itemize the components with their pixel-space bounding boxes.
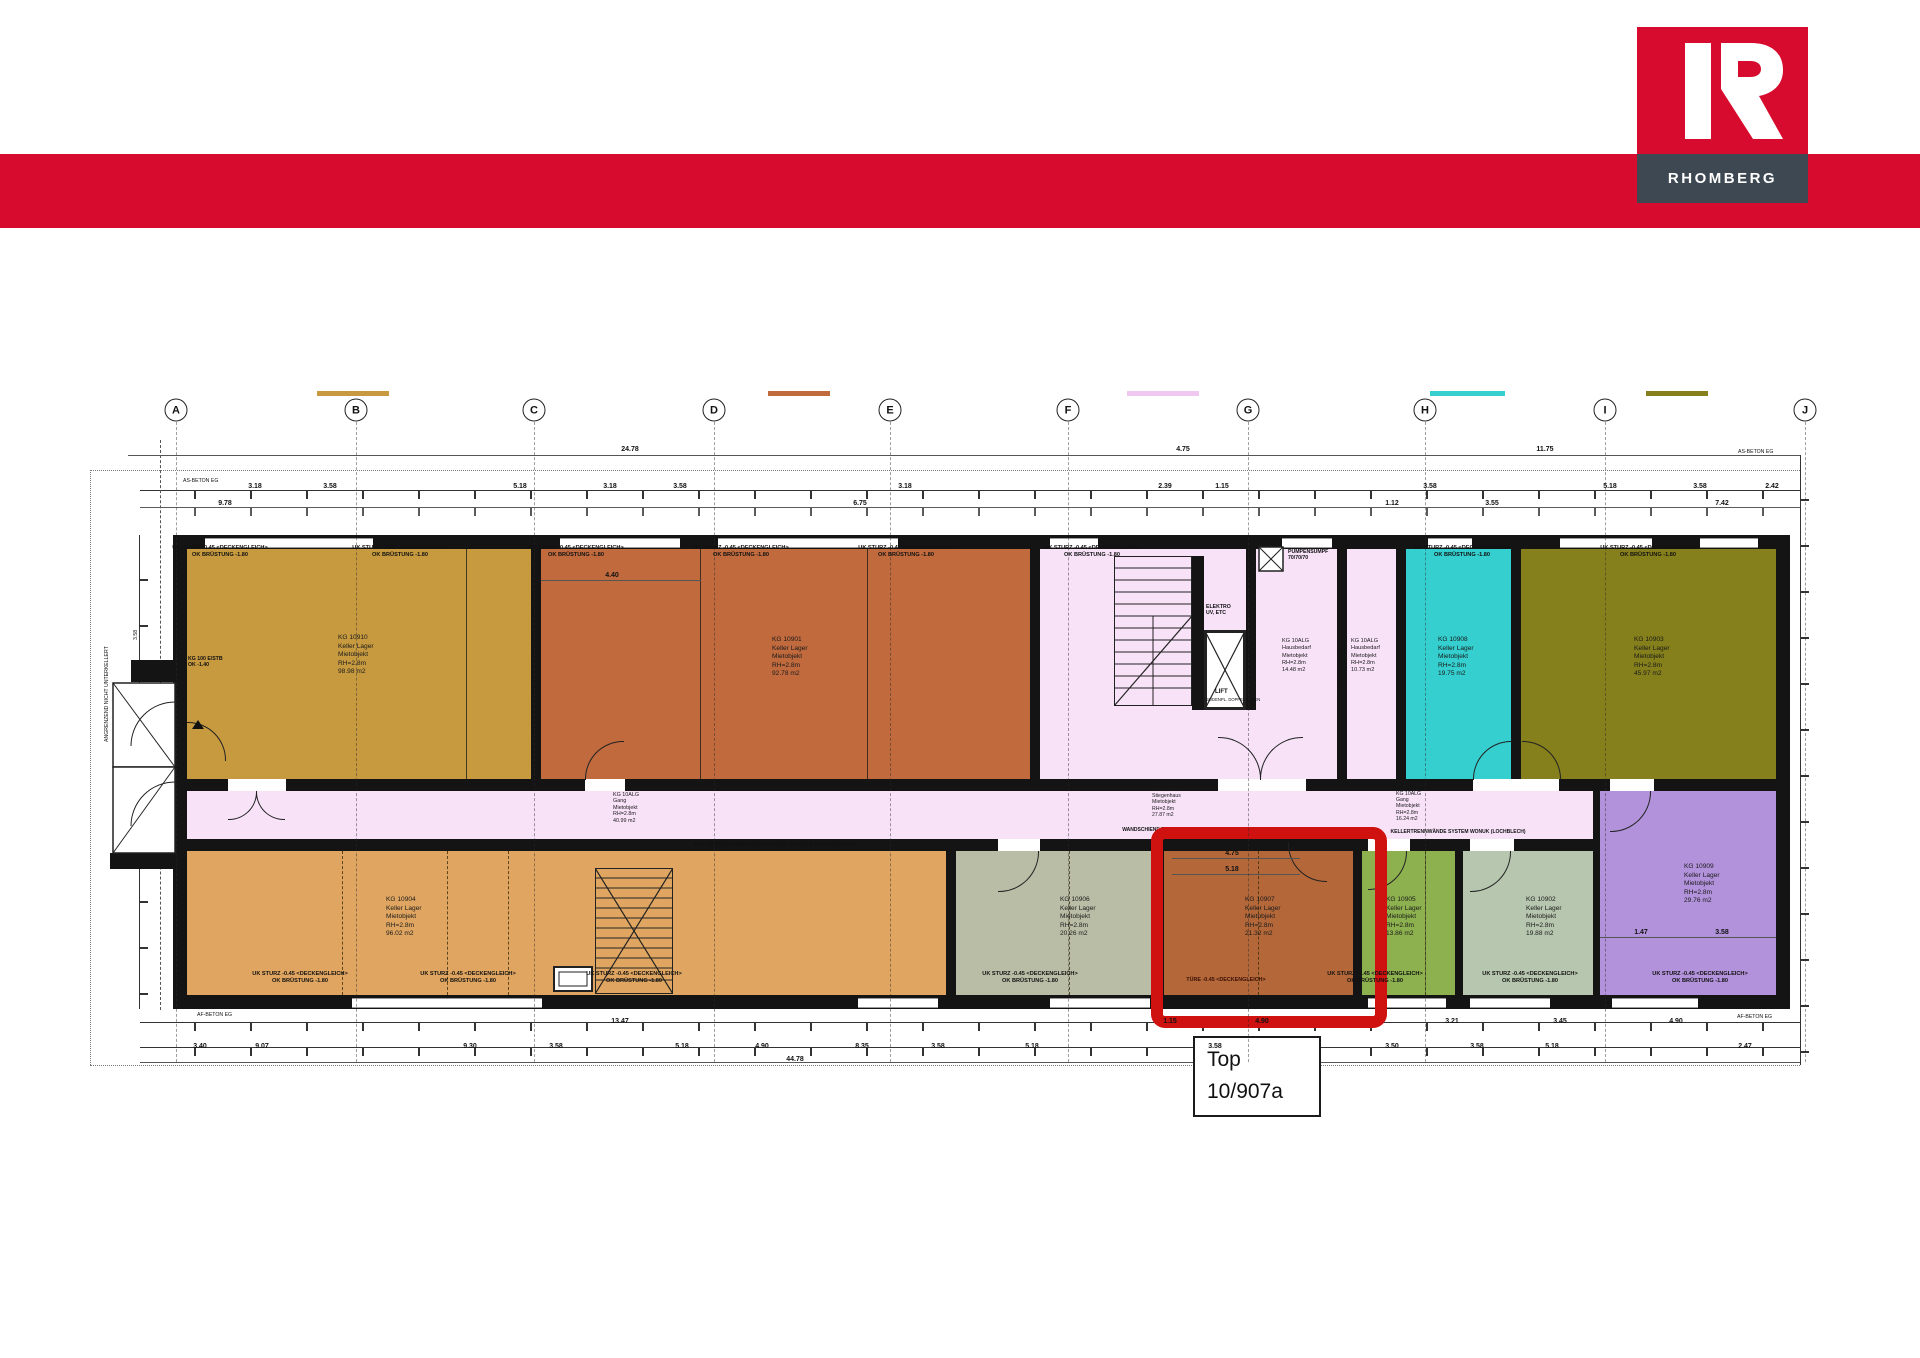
dim-label: 11.75 <box>1536 446 1553 453</box>
grid-axis-line <box>714 422 715 1062</box>
beton-note-top-left: AS-BETON EG <box>183 478 218 484</box>
dim-dotline-top <box>90 470 1800 471</box>
door-gap <box>1610 779 1654 791</box>
partition <box>700 549 701 779</box>
dim-label: 3.58 <box>1208 1043 1222 1050</box>
dim-label: 4.90 <box>1255 1018 1269 1025</box>
header-red-band <box>0 154 1920 228</box>
wall-note-sturz: UK STURZ -0.45 <DECKENGLEICH> OK BRÜSTUN… <box>1414 545 1509 559</box>
dim-label: 7.42 <box>1715 500 1729 507</box>
grid-axis-letter: A <box>165 399 188 422</box>
rhomberg-wordmark-text: RHOMBERG <box>1668 170 1777 187</box>
dim-label: 3.40 <box>193 1043 207 1050</box>
dim-label: 9.78 <box>218 500 232 507</box>
wall-left-stub-top <box>131 660 173 682</box>
window-gap <box>1470 998 1550 1008</box>
room-label-hausbedarf-2: KG 10ALG Hausbedarf Mietobjekt RH=2.8m 1… <box>1351 638 1380 674</box>
dim-label: 1.47 <box>1634 929 1648 936</box>
dim-label: 5.18 <box>513 483 527 490</box>
grid-axis-letter: I <box>1594 399 1617 422</box>
trennwand-note-2: KELLERTRENNWÄNDE SYSTEM WONUK (LOCHBLECH… <box>1391 829 1526 835</box>
grid-axis-letter: H <box>1414 399 1437 422</box>
grid-axis-line <box>1425 422 1426 1062</box>
lichtschacht-label: LICHTSCHACHT <box>1338 650 1344 690</box>
boundary-left-dotted <box>90 470 91 1065</box>
slide-page: RHOMBERG ANGRENZEND NICHT UNTERKELLERT 3… <box>0 0 1920 1358</box>
inner-dim <box>541 580 701 581</box>
wall-note-sturz: UK STURZ -0.45 <DECKENGLEICH> OK BRÜSTUN… <box>982 971 1077 985</box>
grid-axis-line <box>1068 422 1069 1062</box>
dim-label: 3.58 <box>1693 483 1707 490</box>
dim-label: 9.07 <box>255 1043 269 1050</box>
window-gap <box>1050 998 1150 1008</box>
partition <box>466 549 467 779</box>
room-label-10905: KG 10905 Keller Lager Mietobjekt RH=2.8m… <box>1386 896 1422 939</box>
wall-note-sturz: UK STURZ -0.45 <DECKENGLEICH> OK BRÜSTUN… <box>172 545 267 559</box>
dim-label: 3.21 <box>1445 1018 1459 1025</box>
grid-axis-line <box>1248 422 1249 1062</box>
beton-note-top-right: AS-BETON EG <box>1738 449 1773 455</box>
wall-note-sturz: UK STURZ -0.45 <DECKENGLEICH> OK BRÜSTUN… <box>693 545 788 559</box>
window-gap <box>858 998 938 1008</box>
grid-axis-letter: E <box>879 399 902 422</box>
dim-label: 1.15 <box>1215 483 1229 490</box>
room-label-hausbedarf-1: KG 10ALG Hausbedarf Mietobjekt RH=2.8m 1… <box>1282 638 1311 674</box>
dim-label: 3.58 <box>323 483 337 490</box>
dim-label: 3.50 <box>1385 1043 1399 1050</box>
callout-line-2: 10/907a <box>1207 1076 1307 1108</box>
grid-axis-line <box>890 422 891 1062</box>
beton-note-bottom-right: AF-BETON EG <box>1737 1014 1772 1020</box>
dim-label: 5.18 <box>1225 866 1239 873</box>
inner-dim <box>1600 937 1776 938</box>
dim-label: 2.39 <box>1158 483 1172 490</box>
grid-axis-letter: B <box>345 399 368 422</box>
pumpensumpf-shaft <box>1258 546 1284 572</box>
wall-note-sturz: UK STURZ -0.45 <DECKENGLEICH> OK BRÜSTUN… <box>420 971 515 985</box>
wall-v-10 <box>1593 791 1600 995</box>
grid-axis-letter: C <box>523 399 546 422</box>
legend-swatch <box>1430 391 1505 396</box>
dim-label: 3.18 <box>603 483 617 490</box>
window-gap <box>1282 538 1332 548</box>
door-gap <box>1218 779 1306 791</box>
room-label-10904: KG 10904 Keller Lager Mietobjekt RH=2.8m… <box>386 896 422 939</box>
dim-label: 44.78 <box>786 1056 804 1063</box>
door-gap <box>998 839 1040 851</box>
dim-label: 4.90 <box>755 1043 769 1050</box>
grid-axis-letter: J <box>1794 399 1817 422</box>
dim-label: 4.40 <box>605 572 619 579</box>
dim-dotline-bottom <box>90 1065 1800 1066</box>
dim-chain-top-1 <box>140 490 1800 499</box>
lift-sublabel: BODENPL. DOPPELBODEN <box>1206 697 1260 702</box>
legend-swatch <box>317 391 389 396</box>
dim-label: 1.12 <box>1385 500 1399 507</box>
dim-chain-bottom-1 <box>140 1022 1800 1031</box>
wall-note-sturz: UK STURZ -0.45 <DECKENGLEICH> OK BRÜSTUN… <box>1482 971 1577 985</box>
legend-swatch <box>1127 391 1199 396</box>
dim-label: 5.18 <box>1025 1043 1039 1050</box>
dim-label: 2.47 <box>1738 1043 1752 1050</box>
trennwand-note-1: KELLERTRENNWÄNDE SYSTEM WONUK (LOCHBLECH… <box>694 842 856 850</box>
dim-label: 3.18 <box>248 483 262 490</box>
door-gap <box>585 779 625 791</box>
left-vertical-annotation: ANGRENZEND NICHT UNTERKELLERT <box>104 646 110 742</box>
dim-label: 3.58 <box>1715 929 1729 936</box>
wall-v-2 <box>1030 549 1040 779</box>
grid-axis-letter: G <box>1237 399 1260 422</box>
dim-label: 4.90 <box>1669 1018 1683 1025</box>
dim-label: 24.78 <box>621 446 639 453</box>
highlight-top-10-907a <box>1151 827 1387 1028</box>
legend-swatch <box>1646 391 1708 396</box>
wall-note-sturz: UK STURZ -0.45 <DECKENGLEICH> OK BRÜSTUN… <box>1044 545 1139 559</box>
left-dim-a: 3.58 <box>133 630 139 640</box>
dim-label: 13.47 <box>611 1018 629 1025</box>
wall-v-5 <box>1511 549 1521 779</box>
dim-label: 4.75 <box>1225 850 1239 857</box>
legend-swatch <box>768 391 830 396</box>
grid-axis-line <box>1805 422 1806 1062</box>
room-label-10908: KG 10908 Keller Lager Mietobjekt RH=2.8m… <box>1438 636 1474 679</box>
wall-note-sturz: UK STURZ -0.45 <DECKENGLEICH> OK BRÜSTUN… <box>858 545 953 559</box>
wall-v-1 <box>531 549 541 779</box>
wall-note-sturz: UK STURZ -0.45 <DECKENGLEICH> OK BRÜSTUN… <box>1652 971 1747 985</box>
wall-note-sturz: UK STURZ -0.45 <DECKENGLEICH> OK BRÜSTUN… <box>352 545 447 559</box>
room-label-10901: KG 10901 Keller Lager Mietobjekt RH=2.8m… <box>772 636 808 679</box>
exterior-stair-structure <box>112 682 176 854</box>
grid-axis-line <box>1605 422 1606 1062</box>
wall-note-sturz: UK STURZ -0.45 <DECKENGLEICH> OK BRÜSTUN… <box>1600 545 1695 559</box>
dim-label: 2.42 <box>1765 483 1779 490</box>
room-label-gang-2: KG 10ALG Gang Mietobjekt RH=2.8m 16.24 m… <box>1396 791 1421 822</box>
lift-label: LIFT <box>1215 689 1228 696</box>
dim-label: 8.35 <box>855 1043 869 1050</box>
wall-note-sturz: UK STURZ -0.45 <DECKENGLEICH> OK BRÜSTUN… <box>528 545 623 559</box>
dim-label: 3.58 <box>1423 483 1437 490</box>
room-label-stiegenhaus: KG 10ALG Stiegenhaus Mietobjekt RH=2.8m … <box>1152 787 1181 818</box>
pumpensumpf-label: PUMPENSUMPF 70/70/70 <box>1288 549 1328 561</box>
grid-axis-line <box>176 422 177 1062</box>
dim-label: 6.75 <box>853 500 867 507</box>
room-label-10909: KG 10909 Keller Lager Mietobjekt RH=2.8m… <box>1684 863 1720 906</box>
window-gap <box>352 998 542 1008</box>
wall-note-sturz: UK STURZ -0.45 <DECKENGLEICH> OK BRÜSTUN… <box>252 971 347 985</box>
room-label-10902: KG 10902 Keller Lager Mietobjekt RH=2.8m… <box>1526 896 1562 939</box>
rhomberg-r-icon <box>1637 27 1808 154</box>
dim-label: 5.18 <box>1545 1043 1559 1050</box>
dim-line-bottom-total <box>140 1062 1800 1063</box>
grid-axis-line <box>356 422 357 1062</box>
dim-label: 3.58 <box>549 1043 563 1050</box>
door-gap <box>1473 779 1559 791</box>
estb-note: KG 100 E/STB OK -1.40 <box>188 656 223 668</box>
room-label-10903: KG 10903 Keller Lager Mietobjekt RH=2.8m… <box>1634 636 1670 679</box>
level-marker <box>192 720 204 729</box>
wall-note-sturz: UK STURZ -0.45 <DECKENGLEICH> OK BRÜSTUN… <box>586 971 681 985</box>
dim-label: 3.58 <box>1470 1043 1484 1050</box>
beton-note-bottom-left: AF-BETON EG <box>197 1012 232 1018</box>
wall-v-4 <box>1396 549 1406 779</box>
dim-label: 4.75 <box>1176 446 1190 453</box>
dim-label: 3.45 <box>1553 1018 1567 1025</box>
dim-label: 3.55 <box>1485 500 1499 507</box>
grid-axis-line <box>534 422 535 1062</box>
dim-label: 5.18 <box>1603 483 1617 490</box>
wall-v-6 <box>946 851 956 995</box>
room-label-gang: KG 10ALG Gang Mietobjekt RH=2.8m 40.99 m… <box>613 792 639 824</box>
grid-axis-letter: D <box>703 399 726 422</box>
elektro-note: ELEKTRO UV, ETC <box>1206 604 1231 616</box>
door-gap <box>1470 839 1514 851</box>
door-gap <box>228 779 286 791</box>
grid-axis-letter: F <box>1057 399 1080 422</box>
partition <box>867 549 868 779</box>
dim-label: 1.15 <box>1163 1018 1177 1025</box>
dim-label: 9.30 <box>463 1043 477 1050</box>
dim-label: 3.18 <box>898 483 912 490</box>
rhomberg-wordmark: RHOMBERG <box>1637 154 1808 203</box>
dim-label: 3.58 <box>931 1043 945 1050</box>
wall-note-sturz: UK STURZ -0.45 <DECKENGLEICH> OK BRÜSTUN… <box>1327 971 1422 985</box>
window-gap <box>1612 998 1698 1008</box>
dim-label: 3.58 <box>673 483 687 490</box>
dim-label: 5.18 <box>675 1043 689 1050</box>
window-gap <box>1700 538 1758 548</box>
wall-v-9 <box>1455 851 1463 995</box>
wall-outer-right <box>1776 535 1790 1009</box>
rhomberg-logo-square <box>1637 27 1808 154</box>
dim-chain-top-2 <box>140 507 1800 516</box>
wall-left-stub-bottom <box>110 853 173 869</box>
staircase-main <box>1114 556 1192 706</box>
dim-line-top <box>128 455 1800 456</box>
room-label-10906: KG 10906 Keller Lager Mietobjekt RH=2.8m… <box>1060 896 1096 939</box>
wall-stair-lift <box>1192 556 1204 710</box>
